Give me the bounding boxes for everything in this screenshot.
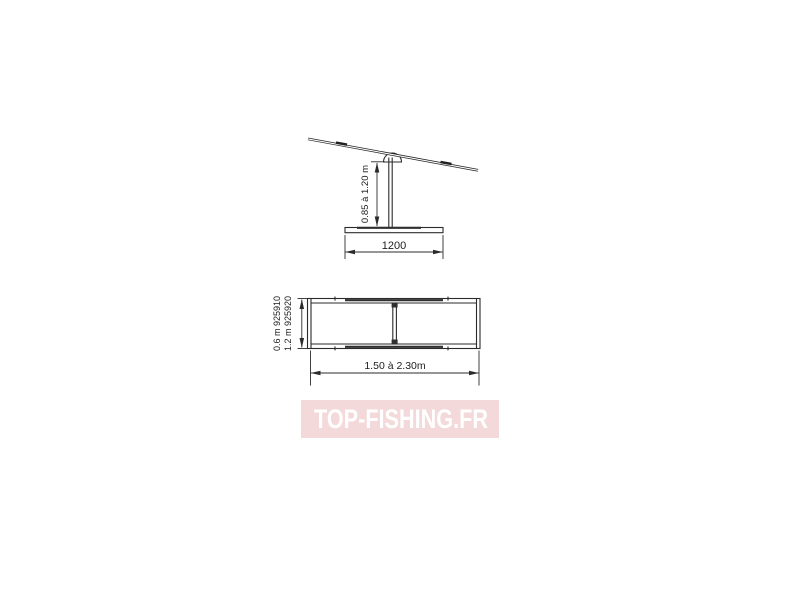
height-dim-label: 0.85 à 1.20 m [360, 165, 371, 223]
plan-view-drawing: 0.6 m 925910 1.2 m 925920 1.50 à 2.30m [272, 296, 480, 386]
watermark: TOP-FISHING.FR [301, 400, 499, 438]
frame-length-dimension: 1.50 à 2.30m [311, 351, 480, 386]
rod-bar-core [308, 139, 478, 170]
base-width-dimension: 1200 [345, 235, 443, 259]
crossbar-joint-bottom [392, 340, 398, 345]
base-dim-label: 1200 [382, 240, 406, 252]
crossbar-joint-top [392, 303, 398, 308]
side-view-drawing: 0.85 à 1.20 m 1200 [308, 139, 478, 259]
width-dim-label-large: 1.2 m 925920 [283, 296, 293, 351]
technical-drawing-canvas: 0.85 à 1.20 m 1200 [0, 0, 800, 600]
frame-width-dimension: 0.6 m 925910 1.2 m 925920 [272, 296, 308, 351]
rod-bar [308, 139, 478, 170]
support-post [389, 158, 392, 228]
length-dim-label: 1.50 à 2.30m [364, 360, 426, 372]
width-dim-label-small: 0.6 m 925910 [272, 296, 282, 351]
center-crossbar [393, 303, 397, 344]
watermark-text: TOP-FISHING.FR [314, 404, 488, 434]
height-dimension: 0.85 à 1.20 m [360, 162, 385, 226]
technical-drawing: 0.85 à 1.20 m 1200 [0, 0, 800, 600]
